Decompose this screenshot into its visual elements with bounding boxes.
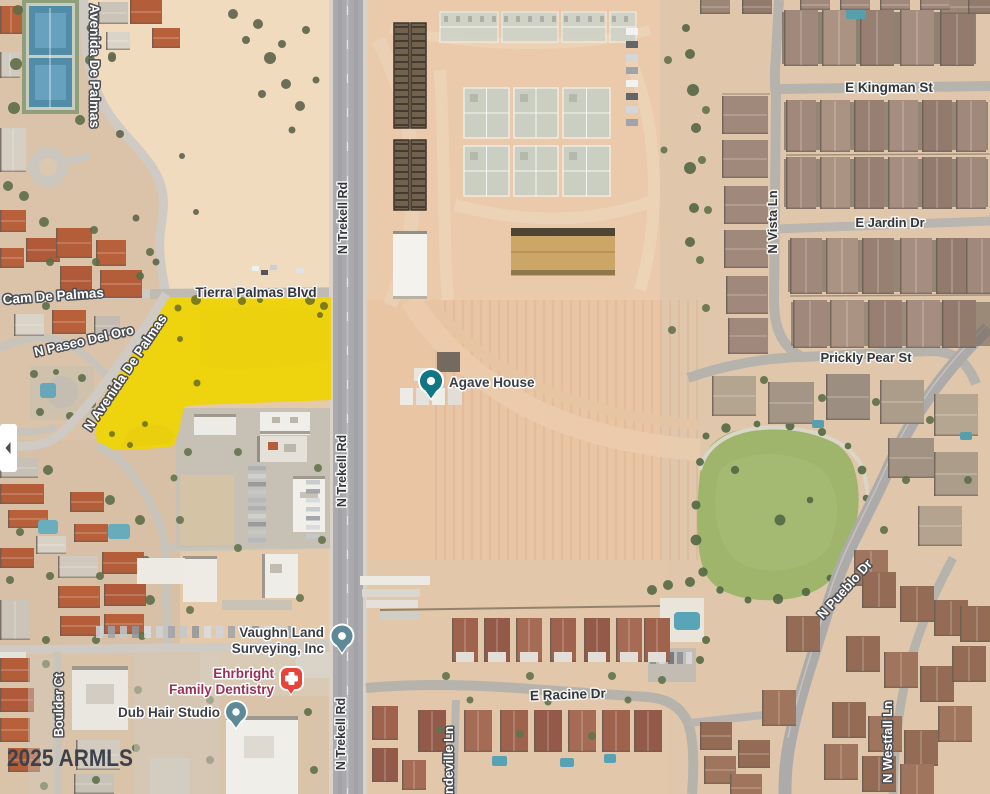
svg-text:N Vista Ln: N Vista Ln — [765, 190, 780, 253]
svg-text:Mandeville Ln: Mandeville Ln — [441, 726, 456, 794]
svg-text:E Jardin Dr: E Jardin Dr — [855, 215, 924, 230]
svg-text:Vaughn Land: Vaughn Land — [239, 625, 324, 640]
svg-text:N Trekell Rd: N Trekell Rd — [335, 435, 349, 507]
svg-text:Ehrbright: Ehrbright — [213, 666, 274, 681]
svg-text:Avenida De Palmas: Avenida De Palmas — [87, 4, 102, 128]
svg-text:Boulder Ct: Boulder Ct — [52, 672, 66, 737]
svg-text:Prickly Pear St: Prickly Pear St — [820, 350, 912, 365]
svg-text:Agave House: Agave House — [449, 375, 535, 390]
svg-text:N Trekell Rd: N Trekell Rd — [336, 182, 350, 254]
svg-text:Surveying, Inc: Surveying, Inc — [232, 641, 325, 656]
svg-text:Tierra Palmas Blvd: Tierra Palmas Blvd — [195, 285, 316, 300]
svg-text:2025 ARMLS: 2025 ARMLS — [7, 745, 133, 772]
svg-text:Dub Hair Studio: Dub Hair Studio — [118, 705, 220, 720]
svg-text:N Trekell Rd: N Trekell Rd — [334, 698, 348, 770]
svg-text:E Racine Dr: E Racine Dr — [530, 686, 607, 704]
svg-text:N Westfall Ln: N Westfall Ln — [880, 701, 895, 783]
svg-text:Family Dentistry: Family Dentistry — [169, 682, 275, 697]
svg-text:E Kingman St: E Kingman St — [845, 80, 933, 95]
